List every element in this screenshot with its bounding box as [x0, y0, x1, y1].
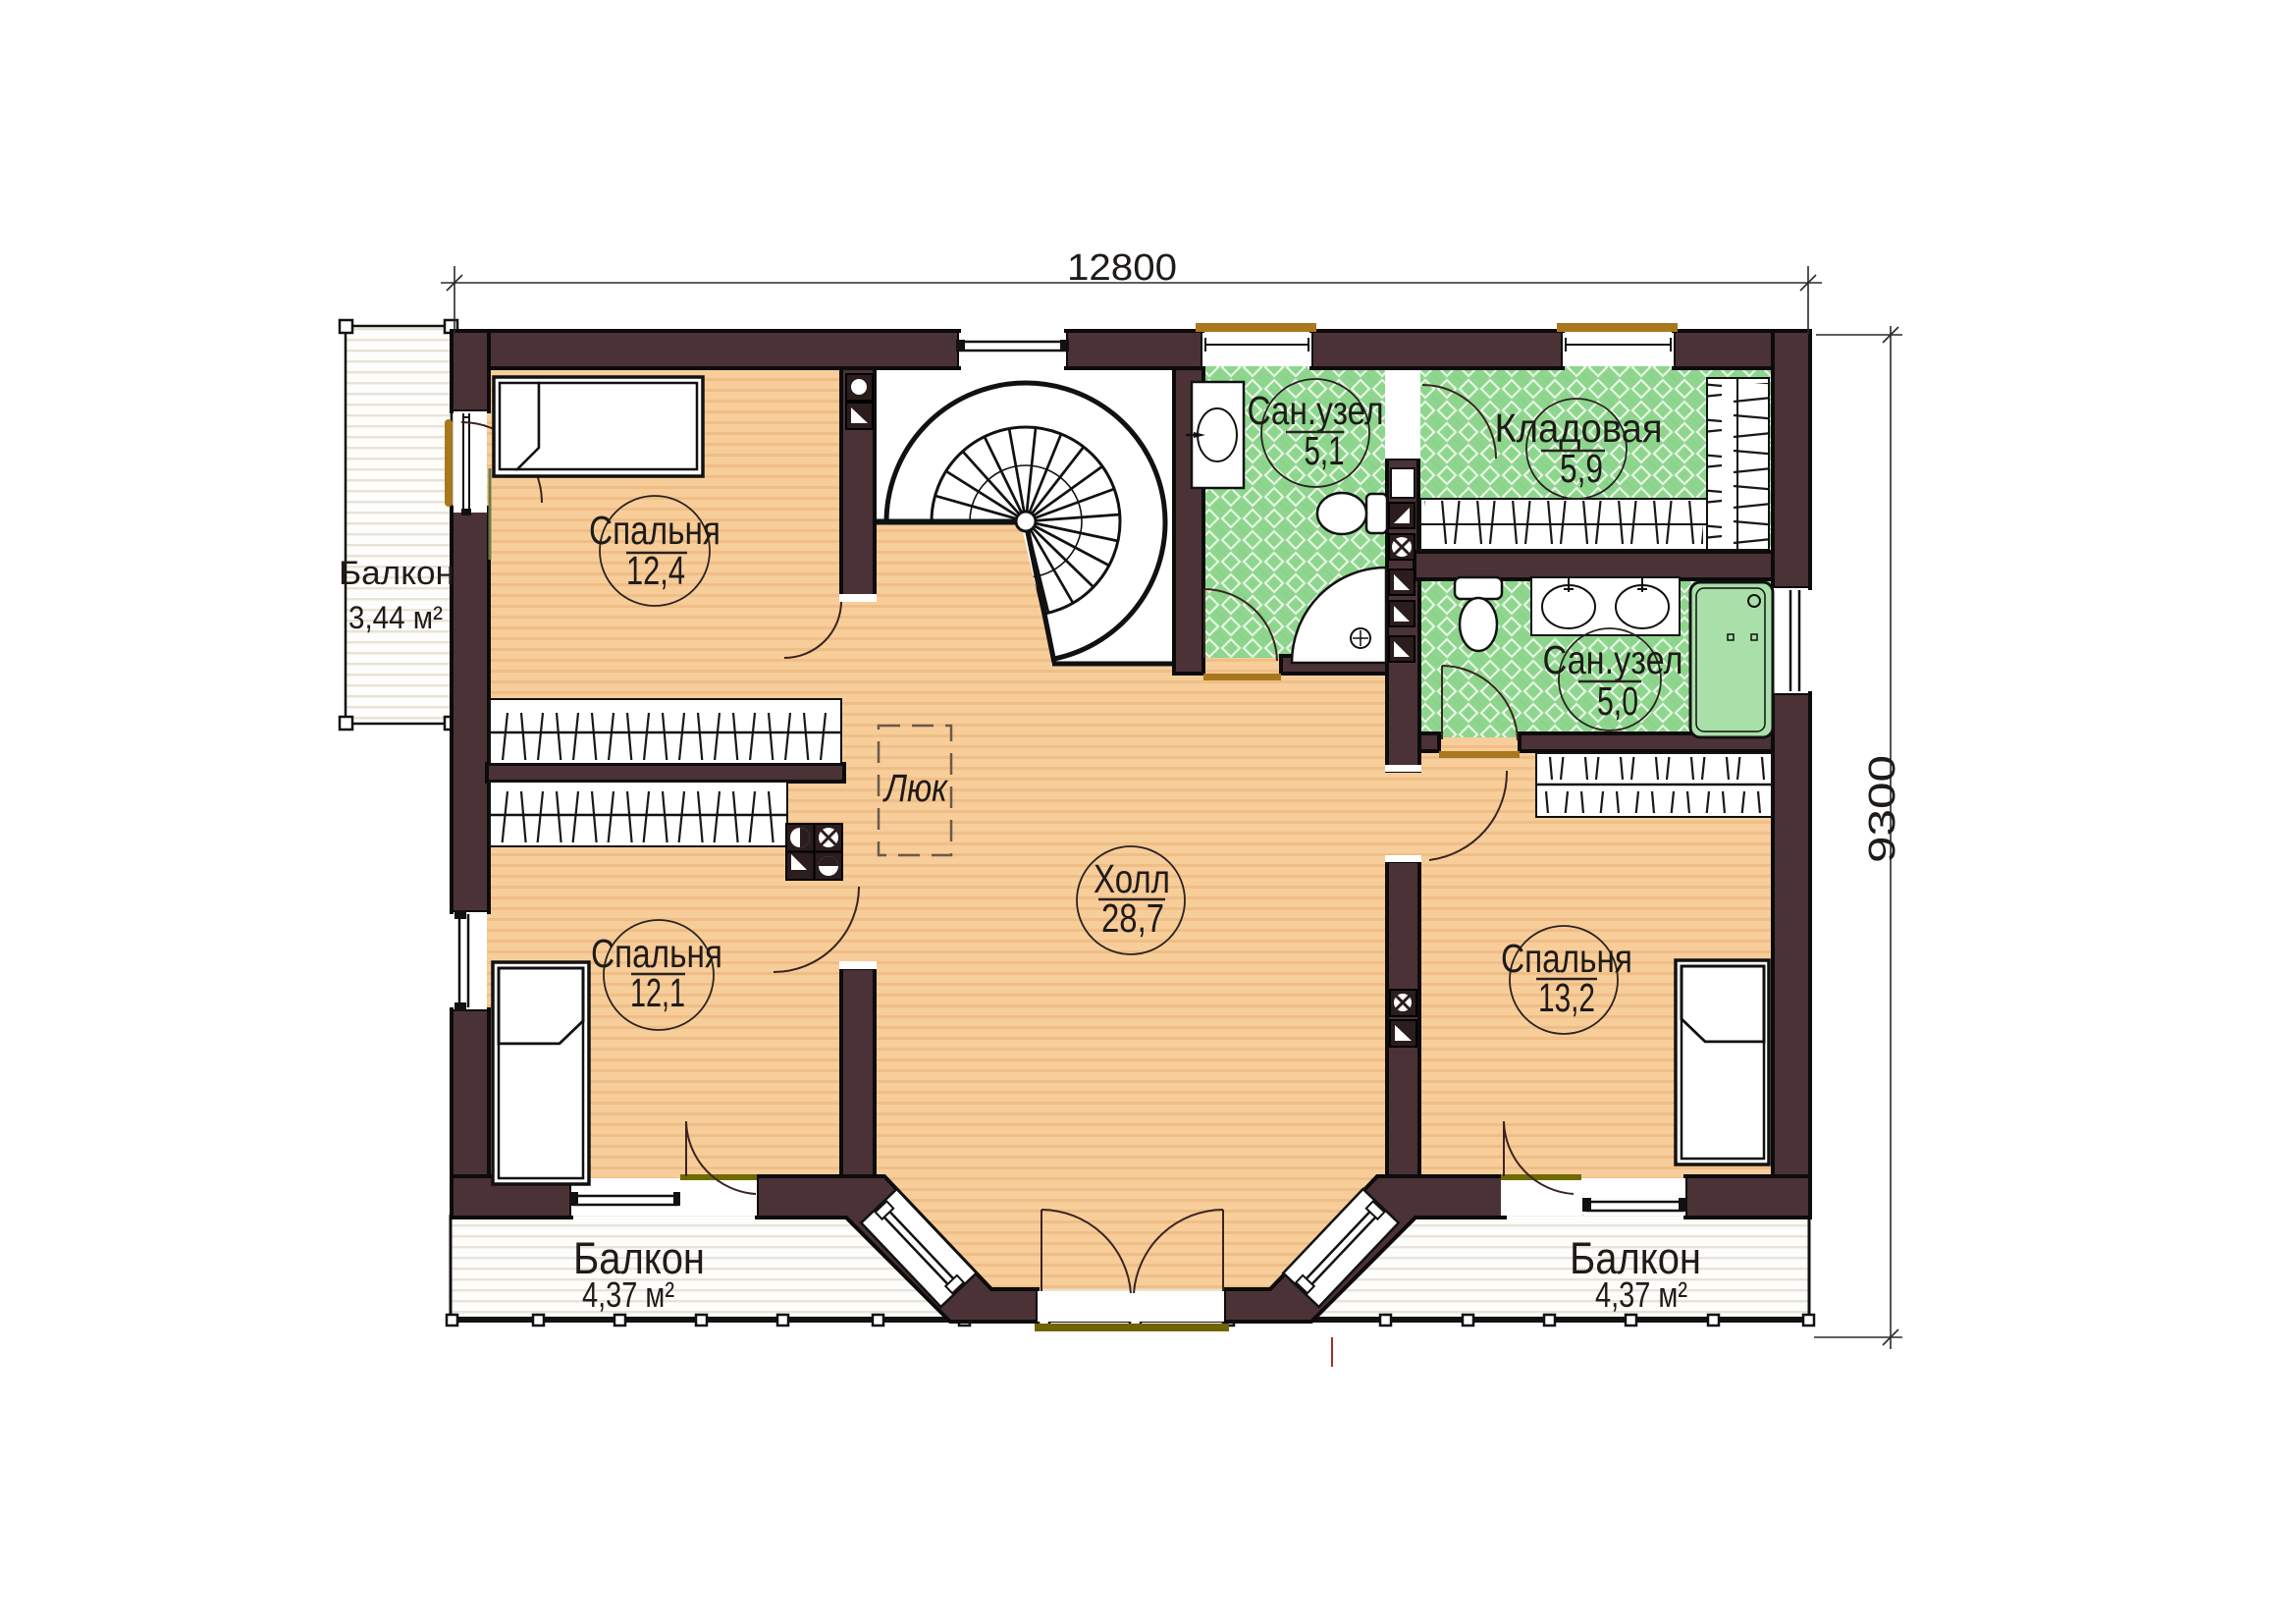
svg-text:Балкон: Балкон	[339, 555, 454, 592]
svg-text:28,7: 28,7	[1101, 895, 1164, 941]
svg-text:5,9: 5,9	[1560, 446, 1603, 491]
svg-text:12,4: 12,4	[626, 548, 685, 593]
svg-text:5,0: 5,0	[1597, 678, 1638, 724]
svg-text:Кладовая: Кладовая	[1495, 406, 1663, 451]
svg-text:13,2: 13,2	[1538, 975, 1595, 1020]
svg-text:Спальня: Спальня	[589, 508, 721, 553]
svg-text:Сан.узел: Сан.узел	[1248, 388, 1384, 433]
svg-text:4,37 м²: 4,37 м²	[582, 1274, 674, 1315]
svg-text:5,1: 5,1	[1305, 428, 1345, 473]
svg-text:Сан.узел: Сан.узел	[1543, 637, 1683, 682]
svg-text:12800: 12800	[1067, 247, 1177, 289]
svg-text:Люк: Люк	[881, 767, 948, 810]
svg-text:9300: 9300	[1862, 755, 1903, 863]
svg-text:12,1: 12,1	[630, 970, 685, 1015]
svg-text:4,37 м²: 4,37 м²	[1595, 1274, 1687, 1315]
svg-text:3,44 м²: 3,44 м²	[348, 600, 443, 635]
